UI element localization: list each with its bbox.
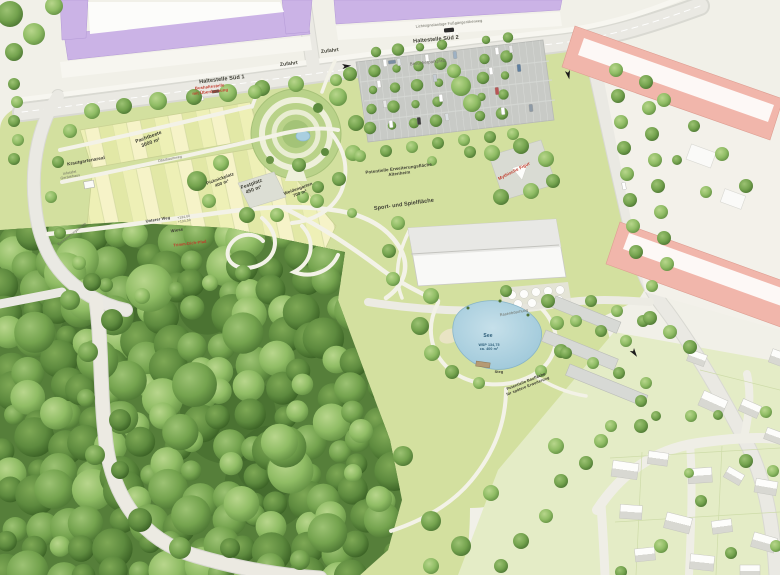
tree-icon (213, 155, 229, 171)
car (529, 104, 533, 112)
tree-icon (463, 94, 481, 112)
car (425, 54, 429, 62)
tree-icon (239, 207, 255, 223)
tree-icon (202, 194, 216, 208)
tree-icon (688, 120, 700, 132)
tree-icon (172, 362, 217, 407)
tree-icon (432, 137, 444, 149)
tree-icon (12, 134, 24, 146)
tree-icon (477, 72, 489, 84)
bus-icon (444, 28, 454, 33)
tree-icon (629, 245, 643, 259)
tree-icon (202, 275, 218, 291)
tree-icon (60, 290, 80, 310)
tree-icon (541, 294, 555, 308)
tree-icon (371, 47, 381, 57)
tree-icon (635, 395, 647, 407)
car (383, 100, 387, 108)
tree-icon (594, 434, 608, 448)
car (433, 74, 437, 82)
tree-icon (657, 231, 671, 245)
tree-icon (479, 54, 489, 64)
tree-icon (34, 469, 74, 509)
car (388, 60, 396, 64)
tree-icon (501, 71, 509, 79)
house (711, 519, 733, 535)
tree-icon (391, 216, 405, 230)
site-plan: Haltestelle Süd 1 Bushaltestelle mit Übe… (0, 0, 780, 575)
tree-icon (498, 89, 508, 99)
tree-icon (715, 147, 729, 161)
tree-icon (10, 380, 45, 415)
tree-icon (366, 104, 376, 114)
tree-icon (430, 115, 442, 127)
tree-icon (11, 96, 23, 108)
car (389, 120, 393, 128)
tree-icon (560, 347, 572, 359)
car (453, 51, 457, 59)
house (611, 460, 639, 479)
tree-icon (368, 65, 380, 77)
tree-icon (494, 559, 508, 573)
tree-icon (595, 325, 607, 337)
tree-icon (347, 208, 357, 218)
tree-icon (235, 265, 251, 281)
tree-icon (181, 460, 202, 481)
tree-icon (437, 40, 447, 50)
tree-icon (411, 79, 423, 91)
tree-icon (5, 43, 23, 61)
tree-icon (482, 36, 490, 44)
tree-icon (617, 141, 631, 155)
tree-icon (134, 288, 150, 304)
tree-icon (78, 342, 98, 362)
tree-icon (539, 509, 553, 523)
tree-icon (390, 82, 400, 92)
tree-icon (484, 145, 500, 161)
car (509, 45, 513, 53)
tree-icon (695, 495, 707, 507)
tree-icon (451, 536, 471, 556)
tree-icon (570, 315, 582, 327)
house (740, 565, 760, 575)
tree-icon (219, 452, 242, 475)
car (445, 113, 449, 121)
tree-icon (235, 399, 266, 430)
tree-icon (286, 400, 308, 422)
tree-icon (660, 257, 674, 271)
house (689, 554, 714, 571)
tree-icon (538, 151, 554, 167)
tree-icon (423, 558, 439, 574)
tree-icon (181, 250, 203, 272)
tree-icon (109, 409, 131, 431)
tree-icon (411, 100, 419, 108)
tree-icon (683, 340, 697, 354)
tree-icon (648, 153, 662, 167)
tree-icon (292, 158, 306, 172)
tree-icon (643, 311, 657, 325)
tree-icon (101, 309, 123, 331)
tree-icon (169, 537, 191, 559)
tree-icon (8, 153, 20, 165)
tree-icon (312, 181, 324, 193)
tree-icon (445, 365, 459, 379)
house (647, 451, 669, 467)
tree-icon (585, 295, 597, 307)
car (501, 107, 505, 115)
tree-icon (416, 43, 424, 51)
tree-icon (475, 111, 485, 121)
car (495, 47, 499, 55)
tree-icon (483, 485, 499, 501)
car (439, 94, 443, 102)
tree-icon (364, 122, 376, 134)
tree-icon (330, 74, 342, 86)
tree-icon (464, 146, 476, 158)
tree-icon (177, 332, 206, 361)
tree-icon (684, 468, 694, 478)
tree-icon (634, 419, 648, 433)
tree-icon (380, 145, 392, 157)
tree-icon (427, 156, 437, 166)
tree-icon (579, 456, 593, 470)
tree-icon (366, 486, 392, 512)
tree-icon (646, 280, 658, 292)
car (377, 80, 381, 88)
tree-icon (548, 438, 564, 454)
site-plan-graphic (0, 0, 780, 575)
tree-icon (386, 272, 400, 286)
tree-icon (128, 508, 152, 532)
tree-icon (493, 189, 509, 205)
tree-icon (354, 150, 366, 162)
tree-icon (447, 64, 461, 78)
tree-icon (663, 325, 677, 339)
tree-icon (421, 511, 441, 531)
tree-icon (611, 305, 623, 317)
tree-icon (700, 186, 712, 198)
tree-icon (484, 131, 496, 143)
tree-icon (8, 78, 20, 90)
car (383, 59, 387, 67)
tree-icon (423, 288, 439, 304)
tree-icon (343, 67, 357, 81)
tree-icon (620, 335, 632, 347)
tree-icon (651, 411, 661, 421)
tree-icon (611, 89, 625, 103)
tree-icon (50, 536, 71, 557)
tree-icon (54, 227, 66, 239)
tree-icon (171, 495, 211, 535)
tree-icon (713, 410, 723, 420)
tree-icon (83, 273, 101, 291)
tree-icon (72, 256, 86, 270)
tree-icon (393, 446, 413, 466)
tree-icon (451, 76, 471, 96)
tree-icon (613, 367, 625, 379)
tree-icon (554, 474, 568, 488)
tree-icon (310, 194, 324, 208)
tree-icon (411, 317, 429, 335)
tree-icon (507, 128, 519, 140)
tree-icon (233, 370, 265, 402)
tree-icon (657, 93, 671, 107)
tree-icon (334, 372, 366, 404)
tree-icon (685, 410, 697, 422)
tree-icon (654, 205, 668, 219)
tree-icon (224, 486, 260, 522)
tree-icon (85, 445, 105, 465)
tree-icon (513, 138, 529, 154)
tree-icon (406, 141, 418, 153)
car (417, 117, 421, 125)
tree-icon (14, 312, 55, 353)
tree-icon (40, 397, 73, 430)
tree-icon (329, 88, 347, 106)
tree-icon (369, 86, 377, 94)
tree-icon (290, 550, 310, 570)
tree-icon (261, 424, 298, 461)
tree-icon (760, 406, 772, 418)
tree-icon (205, 405, 230, 430)
tree-icon (587, 357, 599, 369)
tree-icon (116, 98, 132, 114)
tree-icon (180, 295, 204, 319)
tree-icon (219, 84, 237, 102)
tree-icon (640, 377, 652, 389)
tree-icon (503, 32, 513, 42)
tree-icon (63, 124, 77, 138)
car (517, 64, 521, 72)
tree-icon (8, 115, 20, 127)
tree-icon (297, 191, 309, 203)
house (620, 504, 643, 520)
tree-icon (609, 63, 623, 77)
tree-icon (651, 179, 665, 193)
tree-icon (99, 278, 113, 292)
tree-icon (23, 23, 45, 45)
tree-icon (162, 414, 198, 450)
tree-icon (45, 191, 57, 203)
info-pavilion (84, 180, 95, 189)
tree-icon (84, 103, 100, 119)
car (495, 87, 499, 95)
tree-icon (424, 345, 440, 361)
tree-icon (535, 365, 547, 377)
tree-icon (382, 244, 396, 258)
tree-icon (645, 127, 659, 141)
tree-icon (111, 461, 129, 479)
tree-icon (546, 174, 560, 188)
tree-icon (168, 282, 184, 298)
tree-icon (187, 171, 207, 191)
tree-icon (739, 179, 753, 193)
tree-icon (672, 155, 682, 165)
tree-icon (186, 89, 202, 105)
tree-icon (292, 374, 314, 396)
tree-icon (458, 134, 470, 146)
tree-icon (126, 264, 174, 312)
tree-icon (220, 538, 240, 558)
tree-icon (344, 464, 362, 482)
tree-icon (614, 115, 628, 129)
tree-icon (332, 172, 346, 186)
tree-icon (149, 92, 167, 110)
tree-icon (473, 377, 485, 389)
tree-icon (725, 547, 737, 559)
tree-icon (642, 101, 656, 115)
car (489, 67, 493, 75)
tree-icon (52, 156, 64, 168)
tree-icon (523, 183, 539, 199)
tree-icon (620, 167, 634, 181)
tree-icon (626, 219, 640, 233)
tree-icon (308, 513, 348, 553)
tree-icon (348, 115, 364, 131)
car (397, 58, 401, 66)
tree-icon (392, 43, 404, 55)
tree-icon (288, 76, 304, 92)
tree-icon (513, 533, 529, 549)
tree-icon (739, 454, 753, 468)
tree-icon (639, 75, 653, 89)
tree-icon (550, 316, 564, 330)
tree-icon (767, 465, 779, 477)
tree-icon (623, 193, 637, 207)
tree-icon (654, 539, 668, 553)
tree-icon (248, 85, 262, 99)
tree-icon (68, 535, 95, 562)
tree-icon (387, 100, 399, 112)
tree-icon (434, 58, 446, 70)
tree-icon (349, 419, 373, 443)
tree-icon (77, 389, 95, 407)
house (634, 547, 655, 562)
tree-icon (605, 420, 617, 432)
tree-icon (222, 312, 263, 353)
tree-icon (270, 208, 284, 222)
tree-icon (413, 61, 423, 71)
tree-icon (500, 285, 512, 297)
